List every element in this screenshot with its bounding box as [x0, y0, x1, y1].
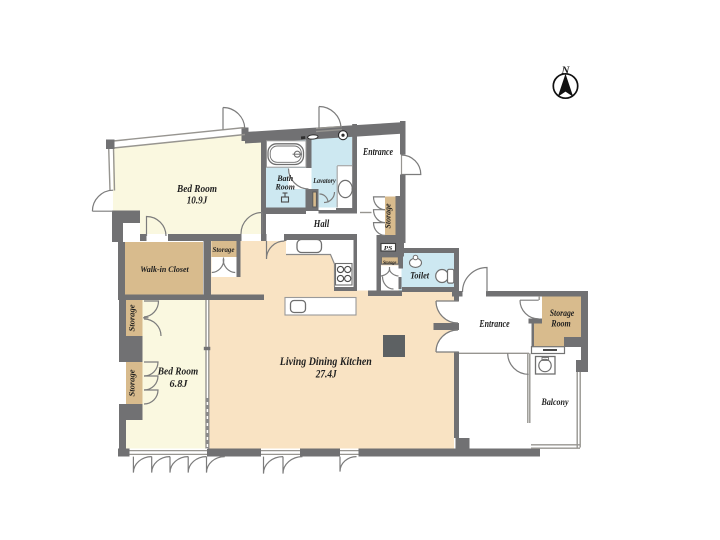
svg-text:Storage: Storage [128, 369, 137, 396]
svg-text:Walk-in Closet: Walk-in Closet [140, 264, 189, 274]
svg-text:Room: Room [550, 319, 570, 330]
svg-text:Storage: Storage [128, 304, 137, 331]
svg-text:Storage: Storage [384, 203, 393, 228]
svg-text:PS: PS [384, 245, 393, 252]
svg-text:10.9J: 10.9J [187, 195, 208, 207]
svg-text:6.8J: 6.8J [170, 378, 189, 390]
svg-text:Bed Room: Bed Room [157, 366, 198, 378]
svg-text:Entrance: Entrance [479, 319, 510, 330]
svg-text:Balcony: Balcony [541, 397, 570, 407]
svg-text:27.4J: 27.4J [315, 368, 338, 381]
svg-text:Lavatory: Lavatory [312, 176, 336, 185]
svg-text:Living Dining Kitchen: Living Dining Kitchen [279, 355, 372, 368]
svg-text:N: N [561, 65, 571, 77]
svg-text:Storage: Storage [550, 308, 575, 319]
svg-text:Toilet: Toilet [410, 272, 429, 282]
svg-text:Bed Room: Bed Room [176, 183, 217, 195]
svg-text:Storage: Storage [383, 260, 397, 266]
svg-text:Room: Room [275, 182, 296, 191]
svg-text:Entrance: Entrance [362, 147, 393, 158]
svg-text:Hall: Hall [313, 218, 329, 230]
svg-text:Storage: Storage [213, 245, 236, 254]
